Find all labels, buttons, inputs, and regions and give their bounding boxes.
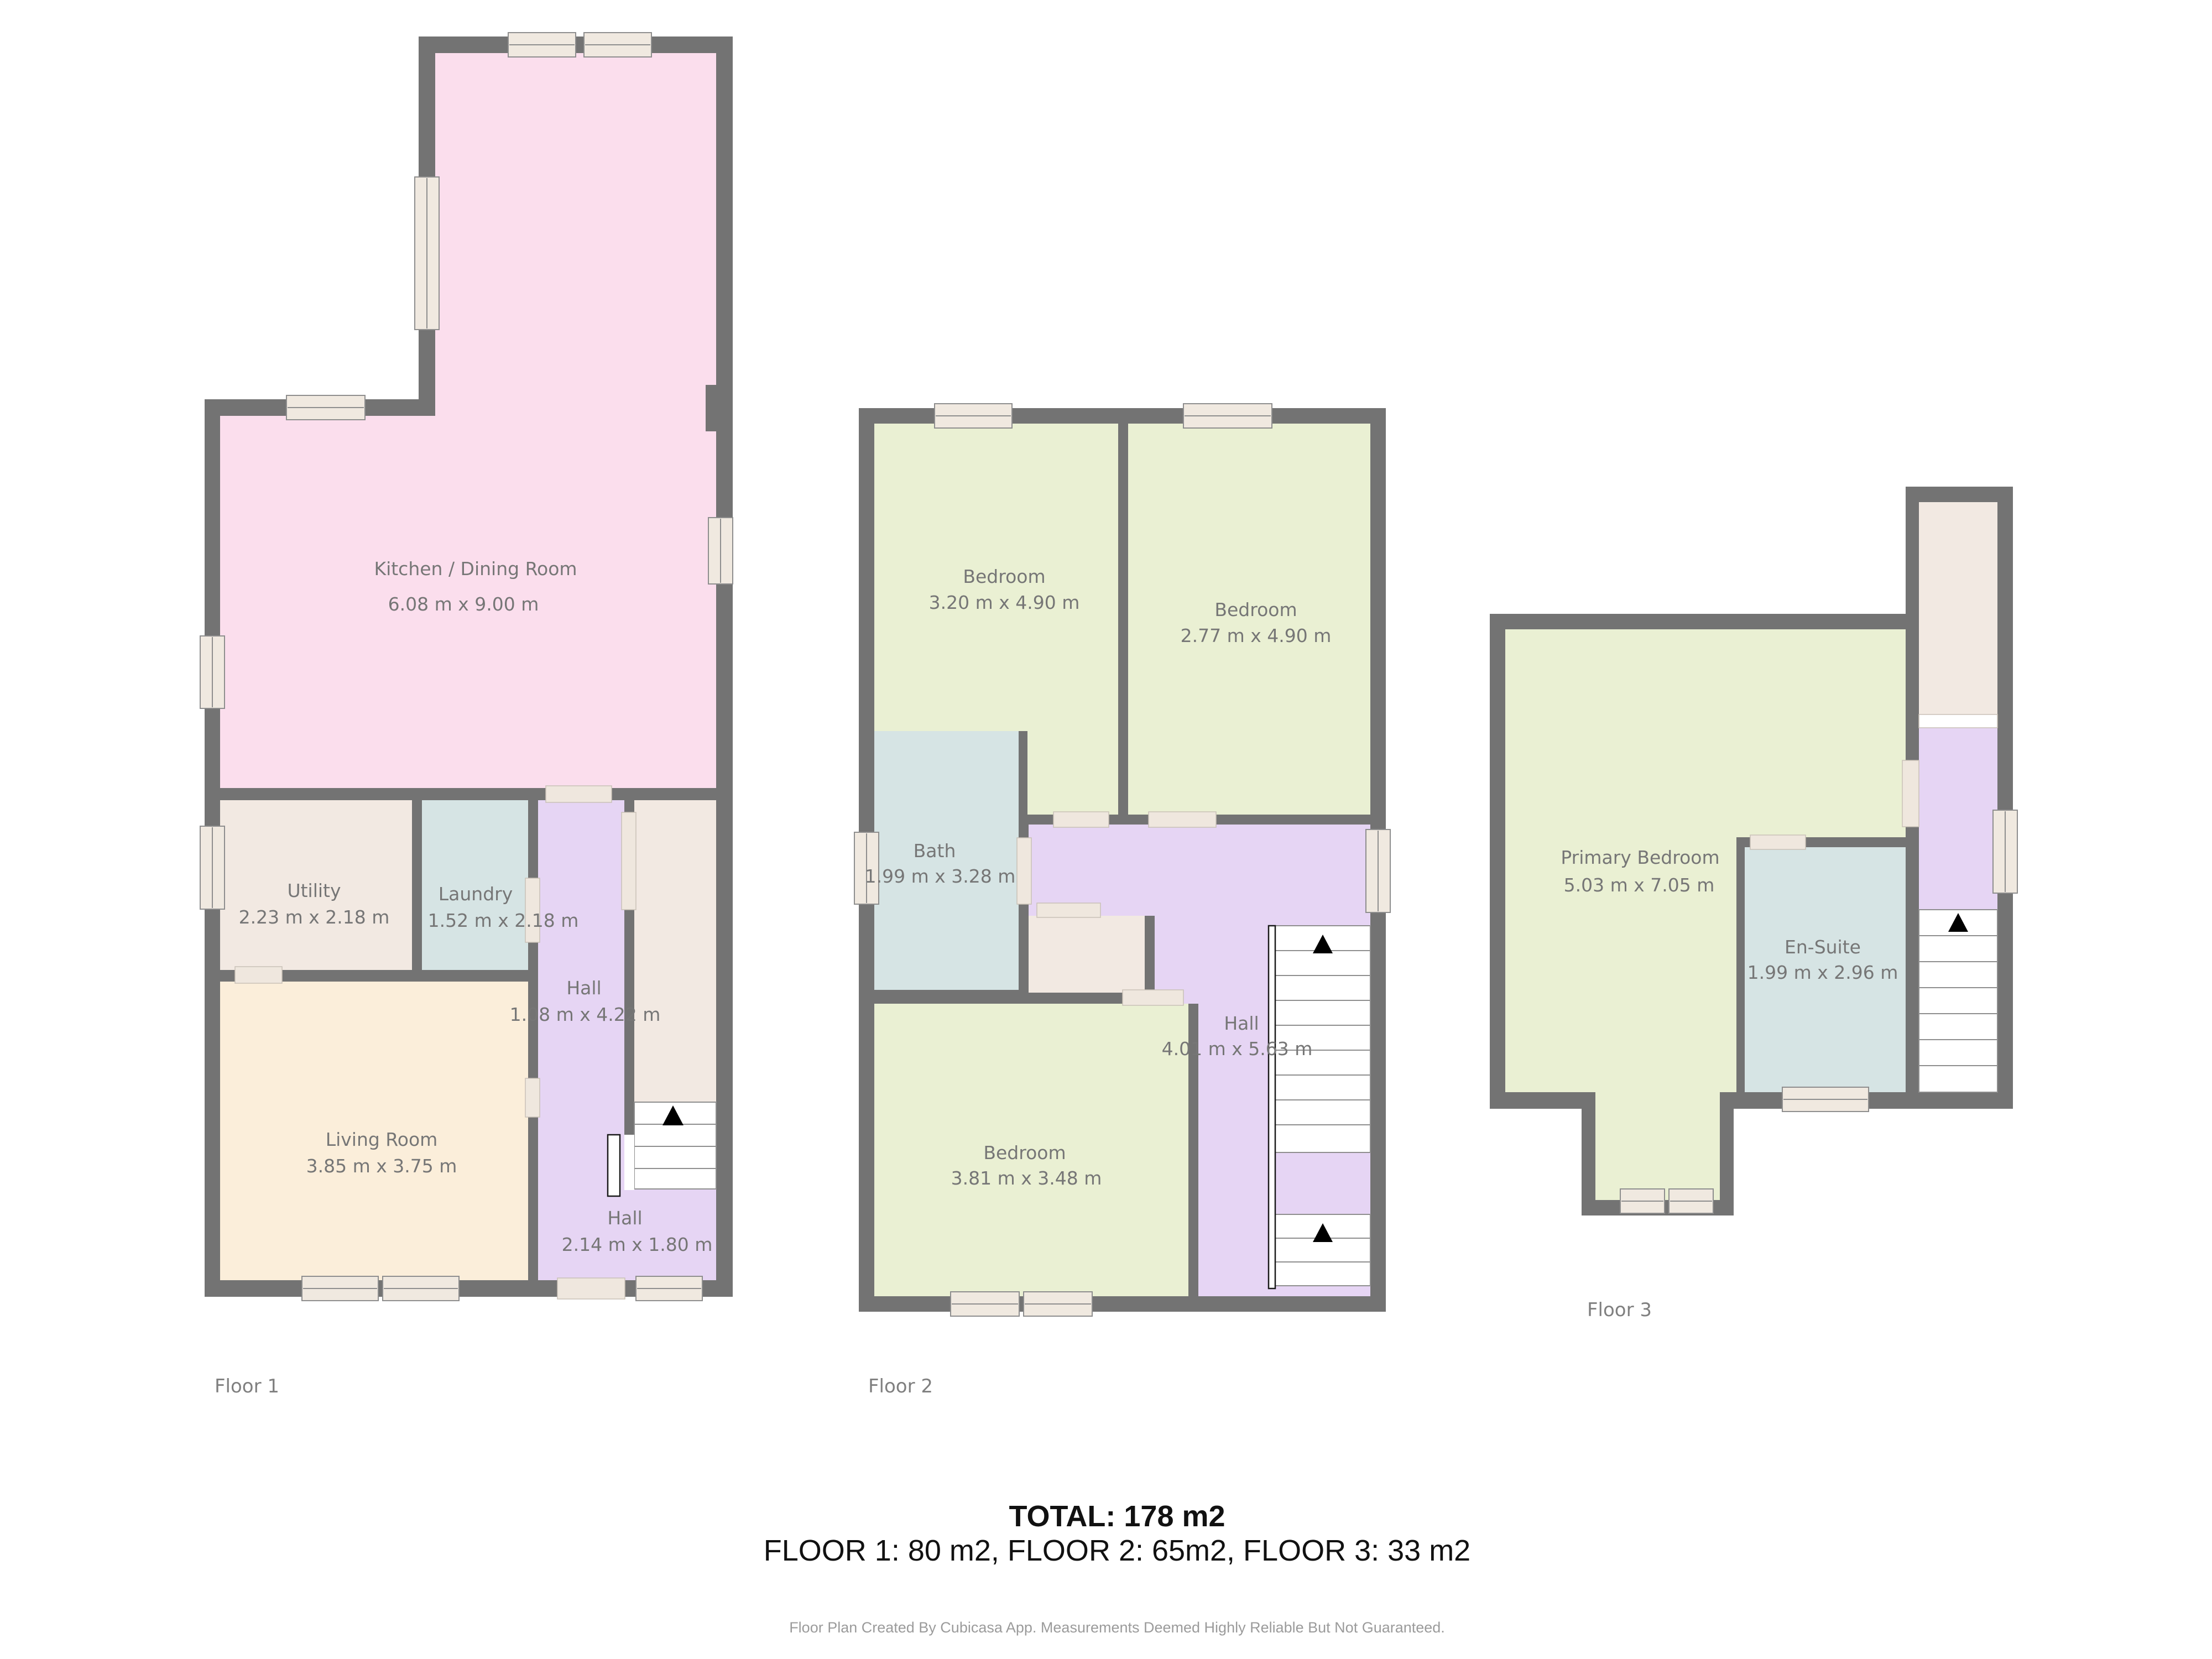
door-opening-living (525, 1078, 540, 1117)
room-label: Bedroom (1214, 599, 1297, 620)
room-dims: 1.99 m x 2.96 m (1747, 962, 1898, 983)
room-hall-floor3 (1919, 728, 1997, 910)
room-dims: 3.85 m x 3.75 m (306, 1155, 457, 1177)
door-opening-bedroom1 (1053, 812, 1109, 827)
room-dims: 2.14 m x 1.80 m (562, 1234, 713, 1255)
door-opening-bedroom-hall (1902, 760, 1919, 827)
door-opening-kitchen-hall (546, 786, 612, 802)
room-label: Kitchen / Dining Room (374, 558, 577, 580)
door-opening-stairs (624, 1135, 634, 1190)
floor-2-plan: Bedroom 3.20 m x 4.90 m Bedroom 2.77 m x… (854, 404, 1390, 1397)
room-label: Hall (607, 1207, 642, 1229)
room-label: Living Room (326, 1129, 438, 1150)
stairs-floor1 (634, 1102, 716, 1189)
door-leaf (608, 1135, 620, 1196)
door-opening-hall-closet (622, 812, 636, 910)
room-dims: 3.20 m x 4.90 m (929, 592, 1080, 613)
floor-3-label: Floor 3 (1587, 1299, 1652, 1321)
room-label: Bath (914, 840, 956, 862)
room-dims: 2.23 m x 2.18 m (239, 906, 390, 928)
door-opening-bath (1017, 838, 1031, 904)
door-opening-closet (1037, 903, 1100, 917)
room-dims: 1.52 m x 2.18 m (428, 910, 579, 931)
stair-rail (1269, 926, 1275, 1288)
door-opening-en-suite (1750, 835, 1806, 849)
room-label: En-Suite (1785, 936, 1861, 958)
chimney-breast (706, 385, 733, 431)
room-closet-floor2 (1029, 916, 1145, 993)
floor-breakdown-text: FLOOR 1: 80 m2, FLOOR 2: 65m2, FLOOR 3: … (764, 1534, 1470, 1567)
room-dims: 4.01 m x 5.63 m (1162, 1038, 1313, 1060)
footer-disclaimer-text: Floor Plan Created By Cubicasa App. Meas… (789, 1619, 1445, 1636)
room-kitchen-dining (220, 53, 716, 788)
room-closet-floor3 (1919, 502, 1997, 714)
summary-block: TOTAL: 178 m2 FLOOR 1: 80 m2, FLOOR 2: 6… (764, 1500, 1470, 1636)
stairs-floor3 (1919, 910, 1997, 1092)
door-opening-bedroom3 (1123, 990, 1183, 1005)
room-dims: 3.81 m x 3.48 m (951, 1167, 1102, 1189)
room-label: Primary Bedroom (1561, 847, 1719, 868)
floor-plan-canvas: Kitchen / Dining Room 6.08 m x 9.00 m Ut… (0, 0, 2212, 1659)
room-dims: 6.08 m x 9.00 m (388, 593, 539, 615)
floor-2-label: Floor 2 (868, 1375, 933, 1397)
room-label: Bedroom (963, 566, 1045, 587)
door-opening-bedroom2 (1149, 812, 1216, 827)
stairs-floor2 (1269, 926, 1370, 1288)
room-dims: 1.99 m x 3.28 m (865, 865, 1016, 887)
stairs-floor3-run (1919, 910, 1997, 1092)
door-opening-utility (235, 967, 282, 983)
room-label: Hall (566, 977, 601, 999)
room-label: Utility (287, 880, 341, 901)
room-dims: 2.77 m x 4.90 m (1181, 625, 1332, 646)
floor-1-plan: Kitchen / Dining Room 6.08 m x 9.00 m Ut… (200, 33, 733, 1397)
room-dims: 5.03 m x 7.05 m (1564, 874, 1715, 896)
floor-1-label: Floor 1 (215, 1375, 279, 1397)
room-dims: 1.08 m x 4.22 m (510, 1004, 661, 1025)
front-door (557, 1278, 625, 1299)
total-area-text: TOTAL: 178 m2 (1009, 1500, 1225, 1533)
door-opening-closet-hall (1919, 714, 1997, 728)
room-label: Bedroom (983, 1142, 1066, 1164)
room-label: Laundry (439, 883, 513, 905)
room-label: Hall (1224, 1013, 1259, 1034)
floor-3-plan: Primary Bedroom 5.03 m x 7.05 m En-Suite… (1490, 487, 2017, 1321)
room-stair-closet-floor1 (634, 800, 716, 1102)
